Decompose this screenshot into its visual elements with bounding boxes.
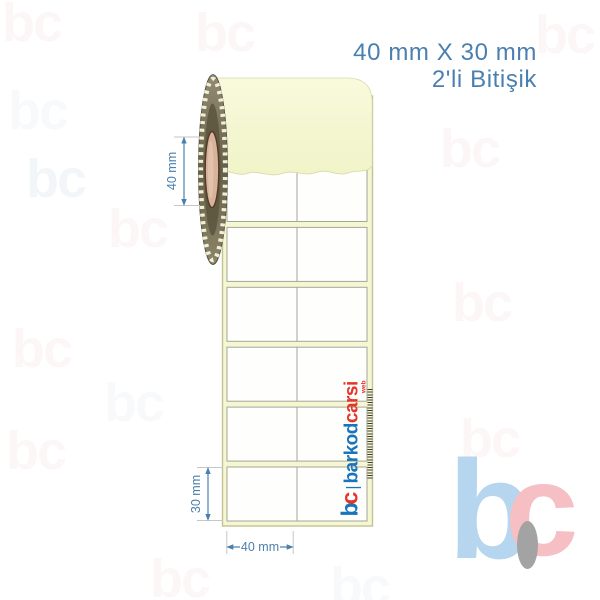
barcode-icon <box>368 389 373 479</box>
corner-logo-lens <box>517 521 538 569</box>
label-cell <box>227 467 297 521</box>
label-cell <box>227 407 297 461</box>
watermark-logo-word1: barkod <box>342 423 364 483</box>
product-size-text: 40 mm X 30 mm <box>353 39 537 66</box>
roll-face <box>213 78 372 175</box>
label-cell <box>227 287 297 341</box>
label-cell <box>297 227 367 281</box>
product-layout-text: 2'li Bitişik <box>353 66 537 93</box>
barkodcarsi-watermark-logo: b c | barkod carsi web <box>337 384 367 517</box>
label-cell <box>227 227 297 281</box>
corner-logo-c: c <box>505 444 578 576</box>
product-image: bc bc bc bc bc bc bc bc bc bc bc bc bc b… <box>0 0 600 600</box>
roll-side <box>199 75 228 265</box>
label-cell <box>297 287 367 341</box>
label-width-dimension-label: 40 mm <box>241 540 279 554</box>
label-height-dimension-label: 30 mm <box>189 475 203 513</box>
label-cell <box>227 347 297 401</box>
label-cell <box>297 168 367 222</box>
product-title: 40 mm X 30 mm 2'li Bitişik <box>353 39 537 93</box>
label-cell <box>227 168 297 222</box>
core-dimension-label: 40 mm <box>165 152 179 190</box>
watermark-logo-b: b <box>337 502 364 516</box>
watermark-logo-divider: | <box>345 485 363 489</box>
watermark-logo-suffix: web <box>361 381 368 394</box>
watermark-logo-c: c <box>337 492 364 505</box>
